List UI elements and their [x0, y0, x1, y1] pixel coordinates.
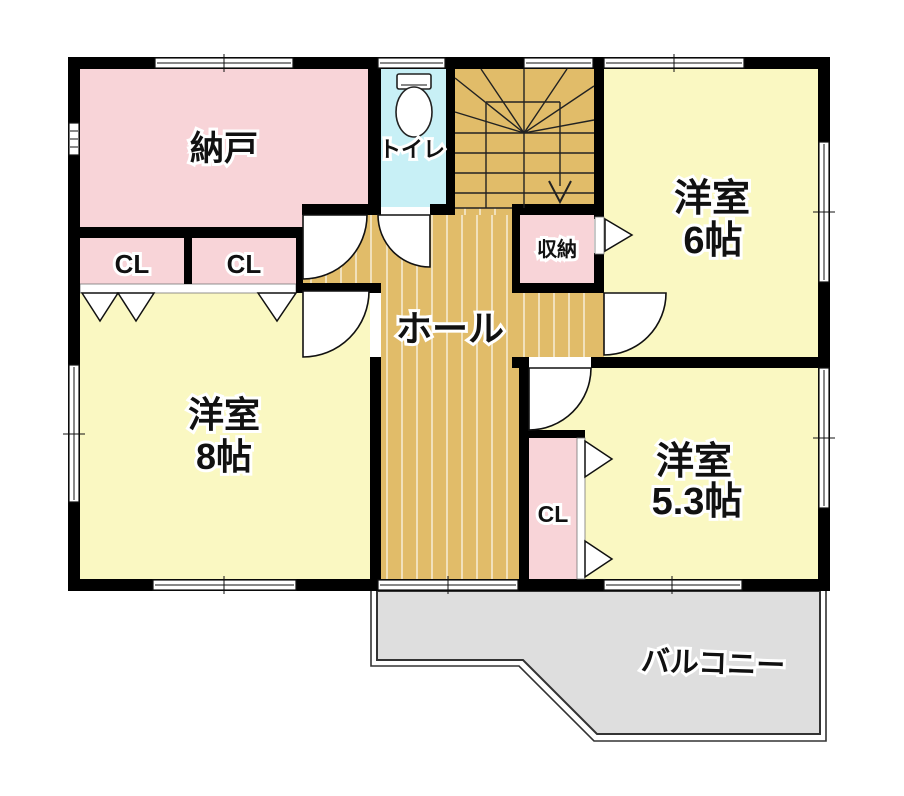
room-western6-label: 洋室: [674, 177, 750, 220]
room-western8-size: 8帖: [196, 436, 252, 477]
floorplan-svg: 納戸 トイレ CL CL 収納 ホール 洋室 6帖 洋室 8帖 洋室 5.3帖 …: [0, 0, 904, 796]
balcony-label: バルコニー: [640, 645, 785, 682]
closet-b-label: CL: [227, 249, 262, 279]
hall-floor-east: [512, 293, 604, 357]
hall-floor-stairfoot: [455, 208, 512, 215]
room-nando-label: 納戸: [190, 130, 258, 168]
floorplan-canvas: 納戸 トイレ CL CL 収納 ホール 洋室 6帖 洋室 8帖 洋室 5.3帖 …: [0, 0, 904, 796]
room-storage-label: 収納: [537, 237, 577, 261]
closet-c-label: CL: [538, 501, 569, 527]
closet-door-track: [80, 284, 296, 293]
room-western6-size: 6帖: [683, 220, 742, 262]
closet-a-label: CL: [115, 249, 150, 279]
room-western53-size: 5.3帖: [652, 481, 743, 523]
hall-label: ホール: [396, 308, 504, 349]
room-toilet-label: トイレ: [379, 137, 445, 162]
room-western8-label: 洋室: [188, 394, 260, 435]
room-western53-label: 洋室: [656, 440, 732, 483]
toilet-fixture-icon: [396, 74, 432, 137]
